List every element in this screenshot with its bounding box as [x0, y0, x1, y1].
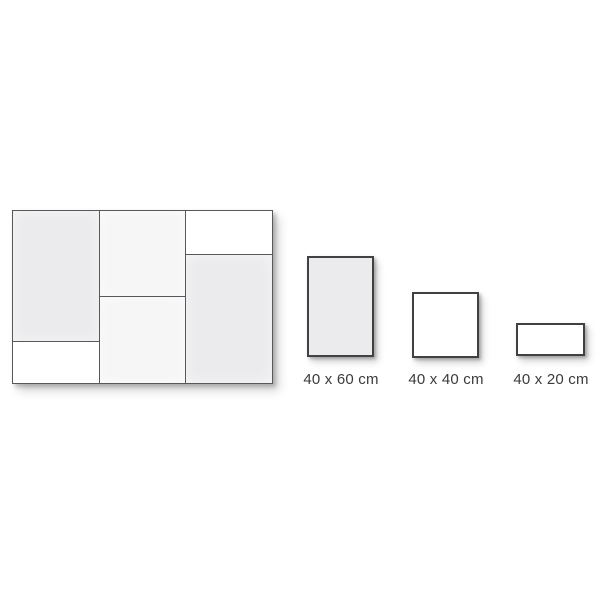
tile-40x60-left-top — [13, 211, 99, 342]
size-label-40x20: 40 x 20 cm — [513, 371, 588, 389]
tile-40x20-right-top — [186, 211, 272, 255]
tile-40x20-left-bottom — [13, 342, 99, 383]
tile-40x40-middle-bottom — [100, 297, 186, 383]
combined-layout-preview — [12, 210, 273, 384]
size-diagram: 40 x 60 cm 40 x 40 cm 40 x 20 cm — [0, 0, 600, 600]
sample-40x60 — [307, 256, 374, 357]
tile-40x40-middle-top — [100, 211, 186, 297]
size-label-40x60: 40 x 60 cm — [303, 371, 378, 389]
layout-column-right — [185, 211, 272, 383]
sample-40x40 — [412, 292, 479, 358]
sample-40x20 — [516, 323, 585, 356]
layout-column-left — [13, 211, 99, 383]
tile-40x60-right-bottom — [186, 255, 272, 383]
layout-column-middle — [99, 211, 186, 383]
size-label-40x40: 40 x 40 cm — [408, 371, 483, 389]
